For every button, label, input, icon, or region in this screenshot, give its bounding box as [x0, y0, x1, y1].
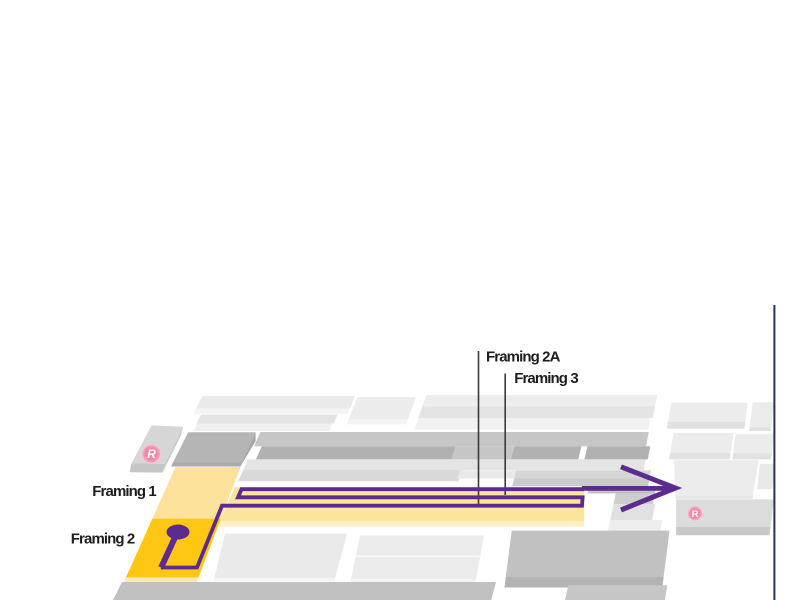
svg-text:Framing 1: Framing 1 — [92, 483, 156, 500]
svg-text:R: R — [692, 509, 699, 520]
svg-text:Framing 2A: Framing 2A — [486, 349, 561, 366]
svg-text:Framing 2: Framing 2 — [71, 530, 135, 547]
svg-text:Framing 3: Framing 3 — [514, 370, 578, 387]
svg-text:R: R — [147, 447, 156, 461]
